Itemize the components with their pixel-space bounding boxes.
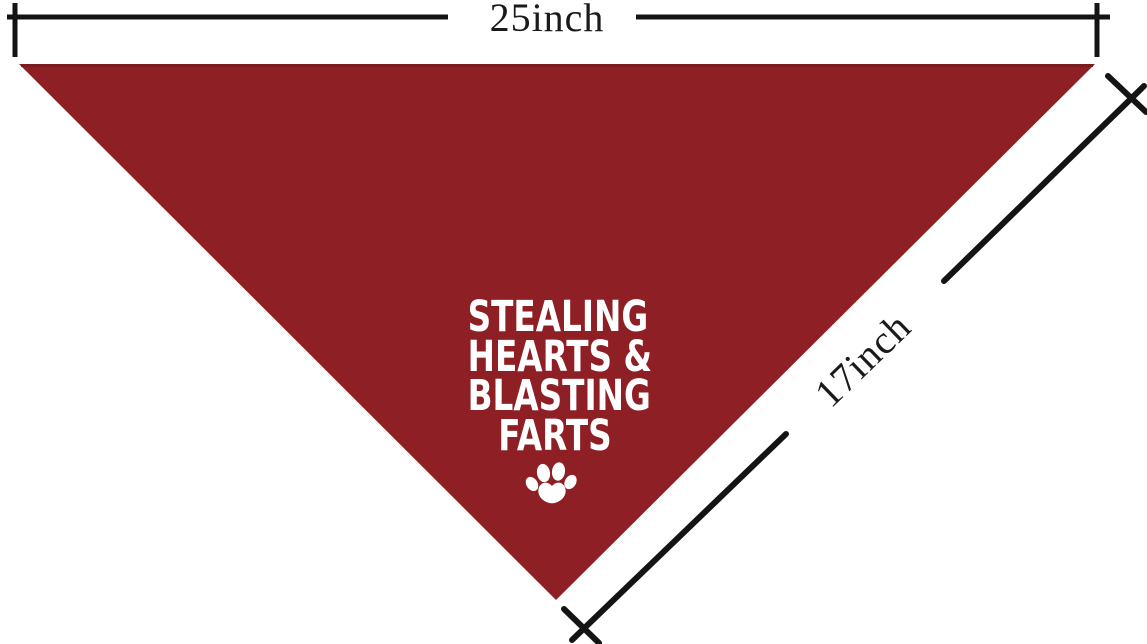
width-measurement-label: 25inch <box>467 0 627 40</box>
bandana-slogan-line-4: FARTS <box>468 417 643 457</box>
product-dimension-diagram: 25inch 17inch STEALING HEARTS & BLASTING… <box>0 0 1147 644</box>
bandana-slogan: STEALING HEARTS & BLASTING FARTS <box>468 298 643 456</box>
diagonal-measure-bottom-tick <box>564 609 599 643</box>
